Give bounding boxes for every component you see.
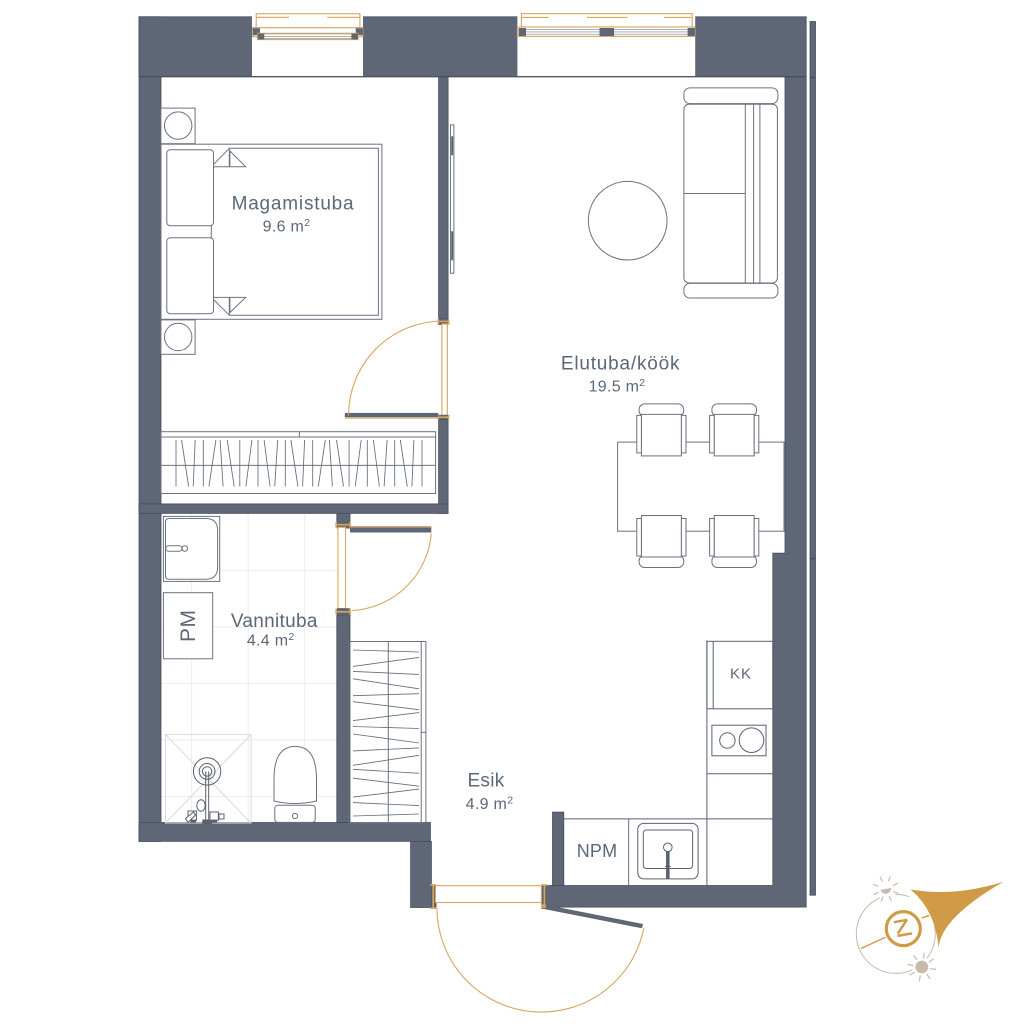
svg-text:Magamistuba: Magamistuba — [232, 194, 355, 215]
svg-text:4.9 m2: 4.9 m2 — [466, 795, 514, 814]
svg-text:KK: KK — [730, 666, 752, 683]
svg-text:Esik: Esik — [467, 771, 504, 792]
svg-text:PM: PM — [177, 609, 200, 642]
svg-text:NPM: NPM — [577, 841, 618, 861]
svg-text:9.6 m2: 9.6 m2 — [263, 217, 311, 236]
svg-text:Elutuba/köök: Elutuba/köök — [561, 354, 680, 375]
svg-text:4.4 m2: 4.4 m2 — [247, 631, 295, 650]
svg-text:19.5 m2: 19.5 m2 — [589, 377, 646, 396]
svg-text:Vannituba: Vannituba — [231, 611, 318, 632]
